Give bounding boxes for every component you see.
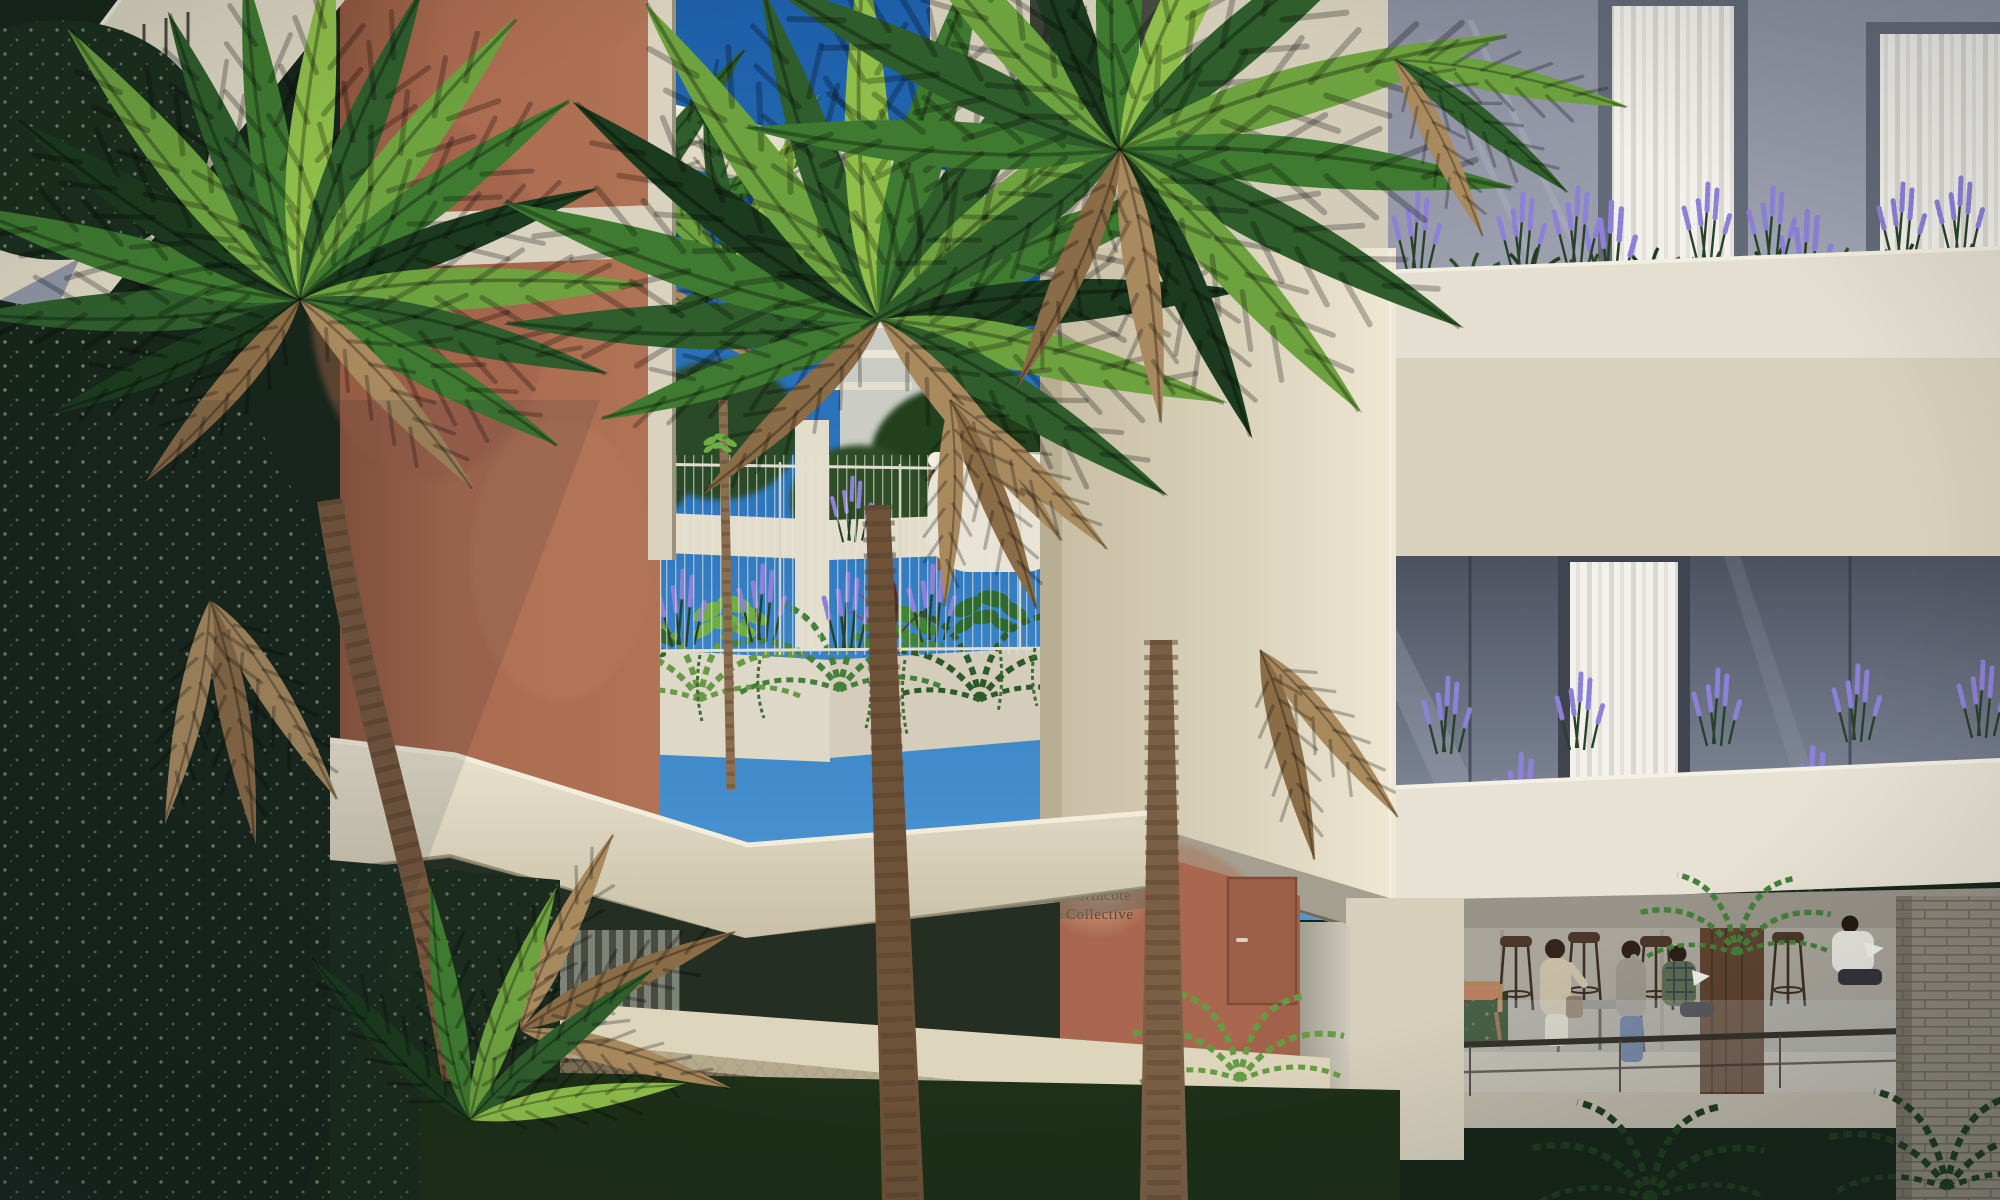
courtyard-render: Northcote Collective [0,0,2000,1200]
